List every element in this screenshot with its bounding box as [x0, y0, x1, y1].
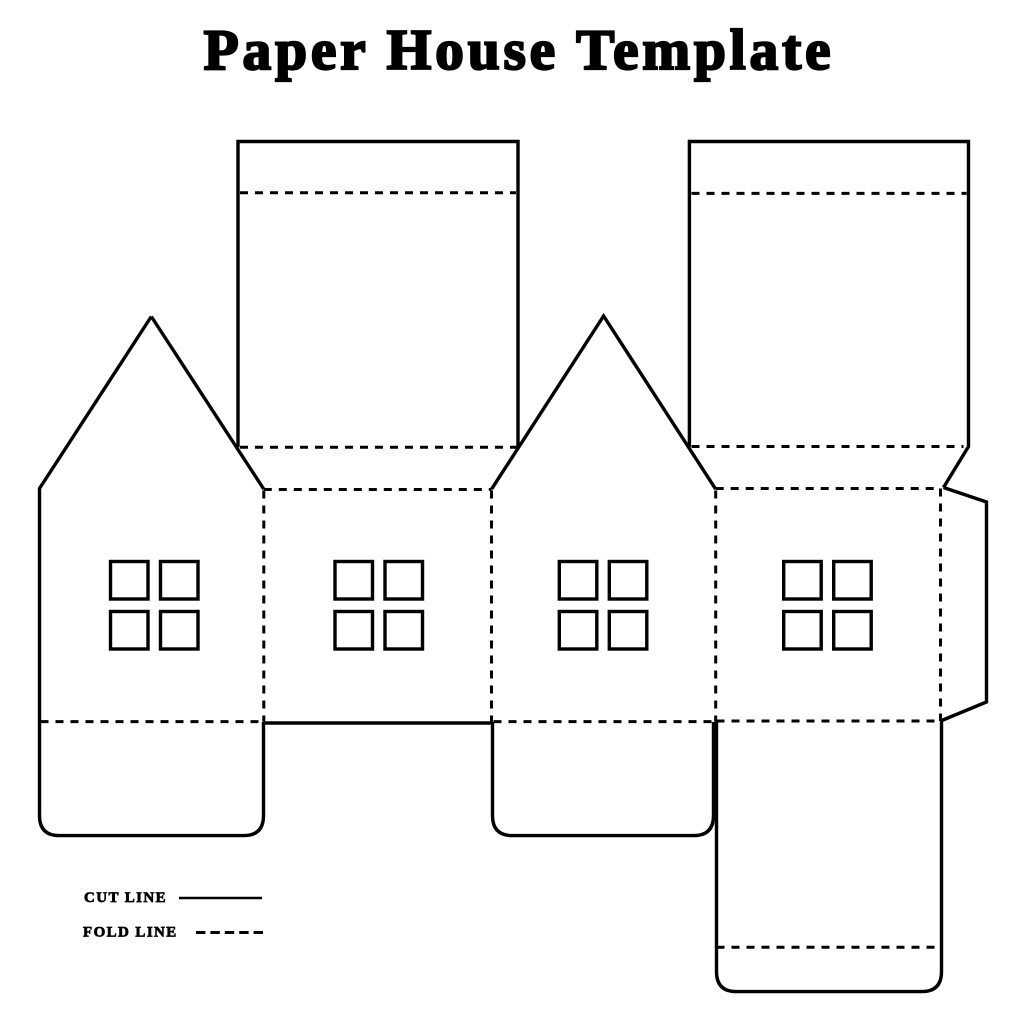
svg-text:CUT LINE: CUT LINE [84, 890, 167, 906]
svg-text:FOLD LINE: FOLD LINE [83, 925, 178, 941]
svg-text:Paper House Template: Paper House Template [204, 19, 835, 82]
